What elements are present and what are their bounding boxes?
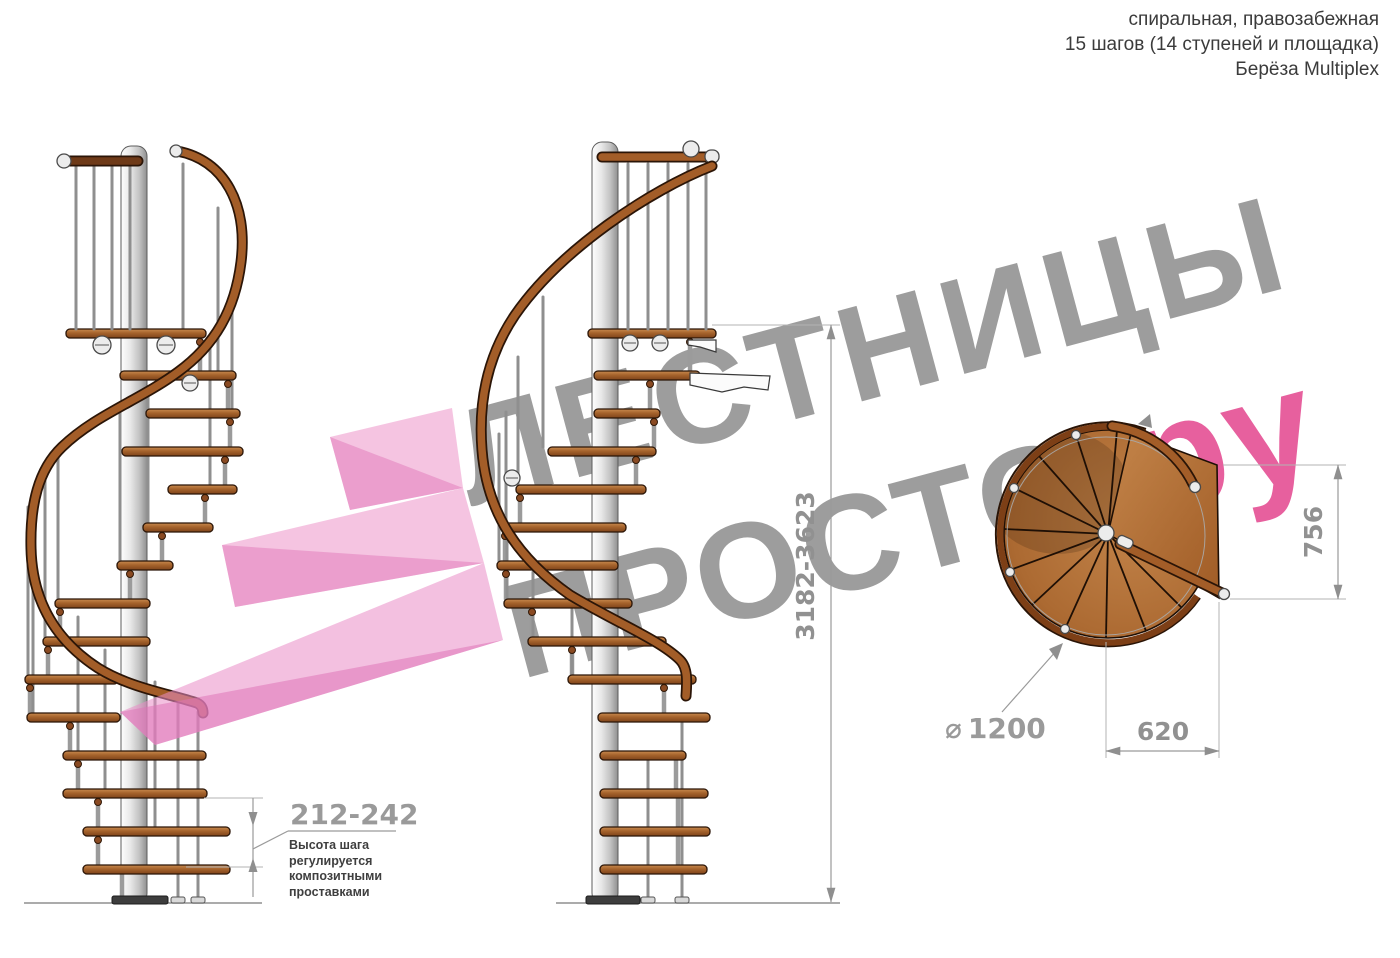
tread [594,371,700,380]
baluster-foot [675,897,689,903]
stair-type-line: спиральная, правозабежная [1065,7,1379,32]
tread [27,713,120,722]
tread [504,523,626,532]
tread [600,751,686,760]
tread [83,865,230,874]
stair-side-view-left [24,145,262,904]
landing-width-value: 620 [1137,717,1189,746]
landing-depth-value: 756 [1299,506,1328,558]
tread [594,409,660,418]
baluster-foot [171,897,185,903]
dimension-diameter: ⌀1200 [945,643,1063,745]
handrail-cap [1219,589,1230,600]
rail-finial-ball [683,141,699,157]
column-top-ball [1098,525,1114,541]
tread [143,523,213,532]
baluster-foot [641,897,655,903]
tread [55,599,150,608]
landing-platform [66,329,206,338]
material-line: Берёза Multiplex [1065,57,1379,82]
step-count-line: 15 шагов (14 ступеней и площадка) [1065,32,1379,57]
diameter-value: 1200 [968,712,1046,745]
tread [63,789,207,798]
column-base [586,896,640,904]
tread [598,713,710,722]
tread [504,599,632,608]
technical-drawing-canvas: ЛЕСТНИЦЫ ПРОСТО.ру [0,0,1400,958]
spiral-staircase-drawing-page: ЛЕСТНИЦЫ ПРОСТО.ру [0,0,1400,958]
step-height-note: Высота шага регулируется композитными пр… [289,838,399,900]
tread [168,485,237,494]
tread [497,561,618,570]
tread [600,865,707,874]
title-block: спиральная, правозабежная 15 шагов (14 с… [1065,7,1379,82]
diameter-symbol: ⌀ [945,712,962,745]
handrail-cap [1190,482,1201,493]
tread [568,675,696,684]
diameter-label: ⌀1200 [945,712,1046,745]
tread [600,827,710,836]
landing-platform [588,329,716,338]
tread [548,447,656,456]
tread [122,447,243,456]
tread [516,485,646,494]
tread [63,751,206,760]
baluster-foot [191,897,205,903]
step-height-value: 212-242 [290,798,419,831]
logo-arrow-mark [120,408,503,745]
tread [146,409,240,418]
tread [600,789,708,798]
tread [117,561,173,570]
rail-end-cap [57,154,71,168]
column-base [112,896,168,904]
tread [83,827,230,836]
handrail-start-cap [170,145,182,157]
total-height-value: 3182-3623 [791,491,820,641]
